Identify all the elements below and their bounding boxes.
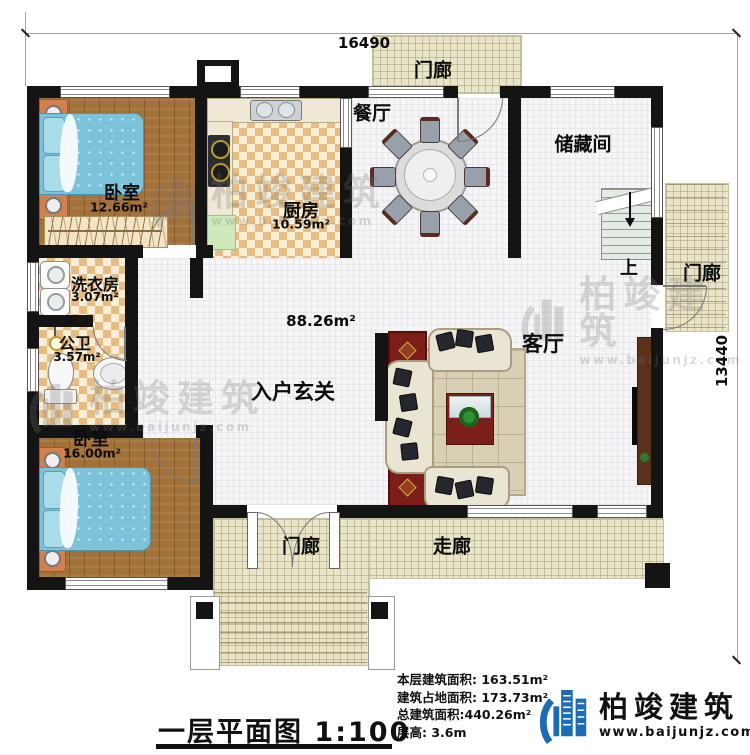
wall-segment [27, 392, 39, 590]
wall-segment [508, 98, 521, 258]
kitchen-area: 10.59m² [272, 217, 330, 232]
bathroom-area: 3.57m² [53, 350, 100, 364]
wall-segment [27, 577, 65, 590]
wall-segment [200, 438, 213, 590]
stats-block: 本层建筑面积: 163.51m² 建筑占地面积: 173.73m² 总建筑面积:… [397, 671, 548, 741]
sofa-pillow [435, 476, 455, 496]
laundry-area: 3.07m² [71, 290, 118, 304]
brand-website: www.baijunjz.com [599, 725, 750, 740]
window [27, 348, 39, 392]
wall-segment [170, 86, 240, 98]
corridor-floor [368, 518, 664, 579]
wall-segment [196, 245, 213, 258]
brand-name: 柏竣建筑 [599, 693, 750, 722]
dimension-width-label: 16490 [338, 34, 390, 52]
wall-segment [190, 258, 203, 298]
sofa-pillow [475, 334, 495, 354]
wall-segment [651, 218, 663, 285]
wall-segment [647, 505, 663, 518]
window [240, 86, 300, 98]
window [368, 86, 444, 98]
wall-segment [444, 86, 458, 98]
window [340, 98, 352, 148]
window [27, 262, 39, 312]
wardrobe-rail [48, 230, 162, 232]
cabinet-plant [640, 453, 649, 462]
washing-machine [40, 288, 70, 316]
washing-machine [40, 261, 70, 289]
brand-logo-icon [538, 686, 592, 746]
wall-segment [27, 245, 143, 258]
porch-top-label: 门廊 [414, 56, 452, 83]
wall-segment [196, 425, 213, 438]
sofa-pillow [400, 442, 419, 461]
bedroom1-area: 12.66m² [90, 200, 148, 215]
wall-segment [27, 86, 39, 262]
sofa-pillow [392, 367, 412, 387]
window [550, 86, 615, 98]
dining-chair [370, 167, 396, 187]
window [60, 86, 170, 98]
entry-steps [214, 592, 367, 663]
tv [632, 387, 637, 445]
stat-floor-area: 本层建筑面积: 163.51m² [397, 671, 548, 689]
wall-segment [195, 98, 207, 245]
wall-segment [340, 148, 352, 258]
potted-plant [456, 404, 482, 430]
hall-label: 入户玄关 [251, 376, 335, 406]
column-cap [196, 602, 213, 619]
wall-segment [651, 86, 663, 127]
stairs-up-label: 上 [620, 254, 638, 280]
dining-label: 餐厅 [353, 99, 391, 126]
open-area-label: 88.26m² [286, 312, 356, 330]
dimension-depth-label: 13440 [713, 335, 731, 387]
stat-footprint: 建筑占地面积: 173.73m² [397, 689, 548, 707]
dining-chair [420, 211, 440, 237]
dining-chair [464, 167, 490, 187]
wall-segment [573, 505, 597, 518]
wall-segment [500, 86, 550, 98]
wall-segment [300, 86, 368, 98]
window [467, 505, 573, 518]
stove-burner [211, 163, 230, 182]
column-cap [371, 602, 388, 619]
wall-segment [375, 333, 388, 421]
dining-table-center [423, 168, 437, 182]
dimension-line-right [737, 33, 738, 660]
dining-chair [420, 117, 440, 143]
extension-line [25, 12, 26, 86]
wall-segment [651, 328, 663, 518]
storage-label: 储藏间 [554, 130, 611, 157]
living-label: 客厅 [522, 328, 564, 358]
sofa-pillow [399, 393, 418, 412]
corridor-end-block [645, 563, 670, 588]
wall-segment [168, 577, 213, 590]
sink-basin [256, 102, 273, 118]
bathroom-sink-basin [100, 363, 127, 384]
chimney-flue-inner [205, 66, 231, 82]
stat-floor-height: 层高: 3.6m [397, 724, 548, 742]
window [597, 505, 647, 518]
stairs-arrow-icon [625, 218, 635, 227]
toilet-tank [44, 389, 77, 404]
window [65, 577, 168, 590]
wall-segment [337, 505, 467, 518]
wall-segment [213, 505, 247, 518]
stove-burner [211, 140, 230, 159]
sink-basin [278, 102, 295, 118]
sofa-pillow [475, 476, 494, 495]
entry-door-leaf [329, 512, 340, 569]
porch-bottom-label: 门廊 [282, 532, 320, 559]
title-underline [156, 744, 392, 749]
floor-plan: 16490 13440 [0, 0, 750, 755]
wall-segment [27, 315, 93, 327]
sofa-pillow [455, 329, 474, 348]
stat-total-area: 总建筑面积:440.26m² [397, 706, 548, 724]
bedroom2-area: 16.00m² [63, 446, 121, 461]
sofa-pillow [454, 479, 474, 499]
window [651, 127, 663, 218]
brand-logo: 柏竣建筑 www.baijunjz.com [538, 686, 750, 746]
porch-right-label: 门廊 [683, 259, 721, 286]
corridor-label: 走廊 [433, 532, 471, 559]
stairs-direction-line [629, 192, 631, 218]
